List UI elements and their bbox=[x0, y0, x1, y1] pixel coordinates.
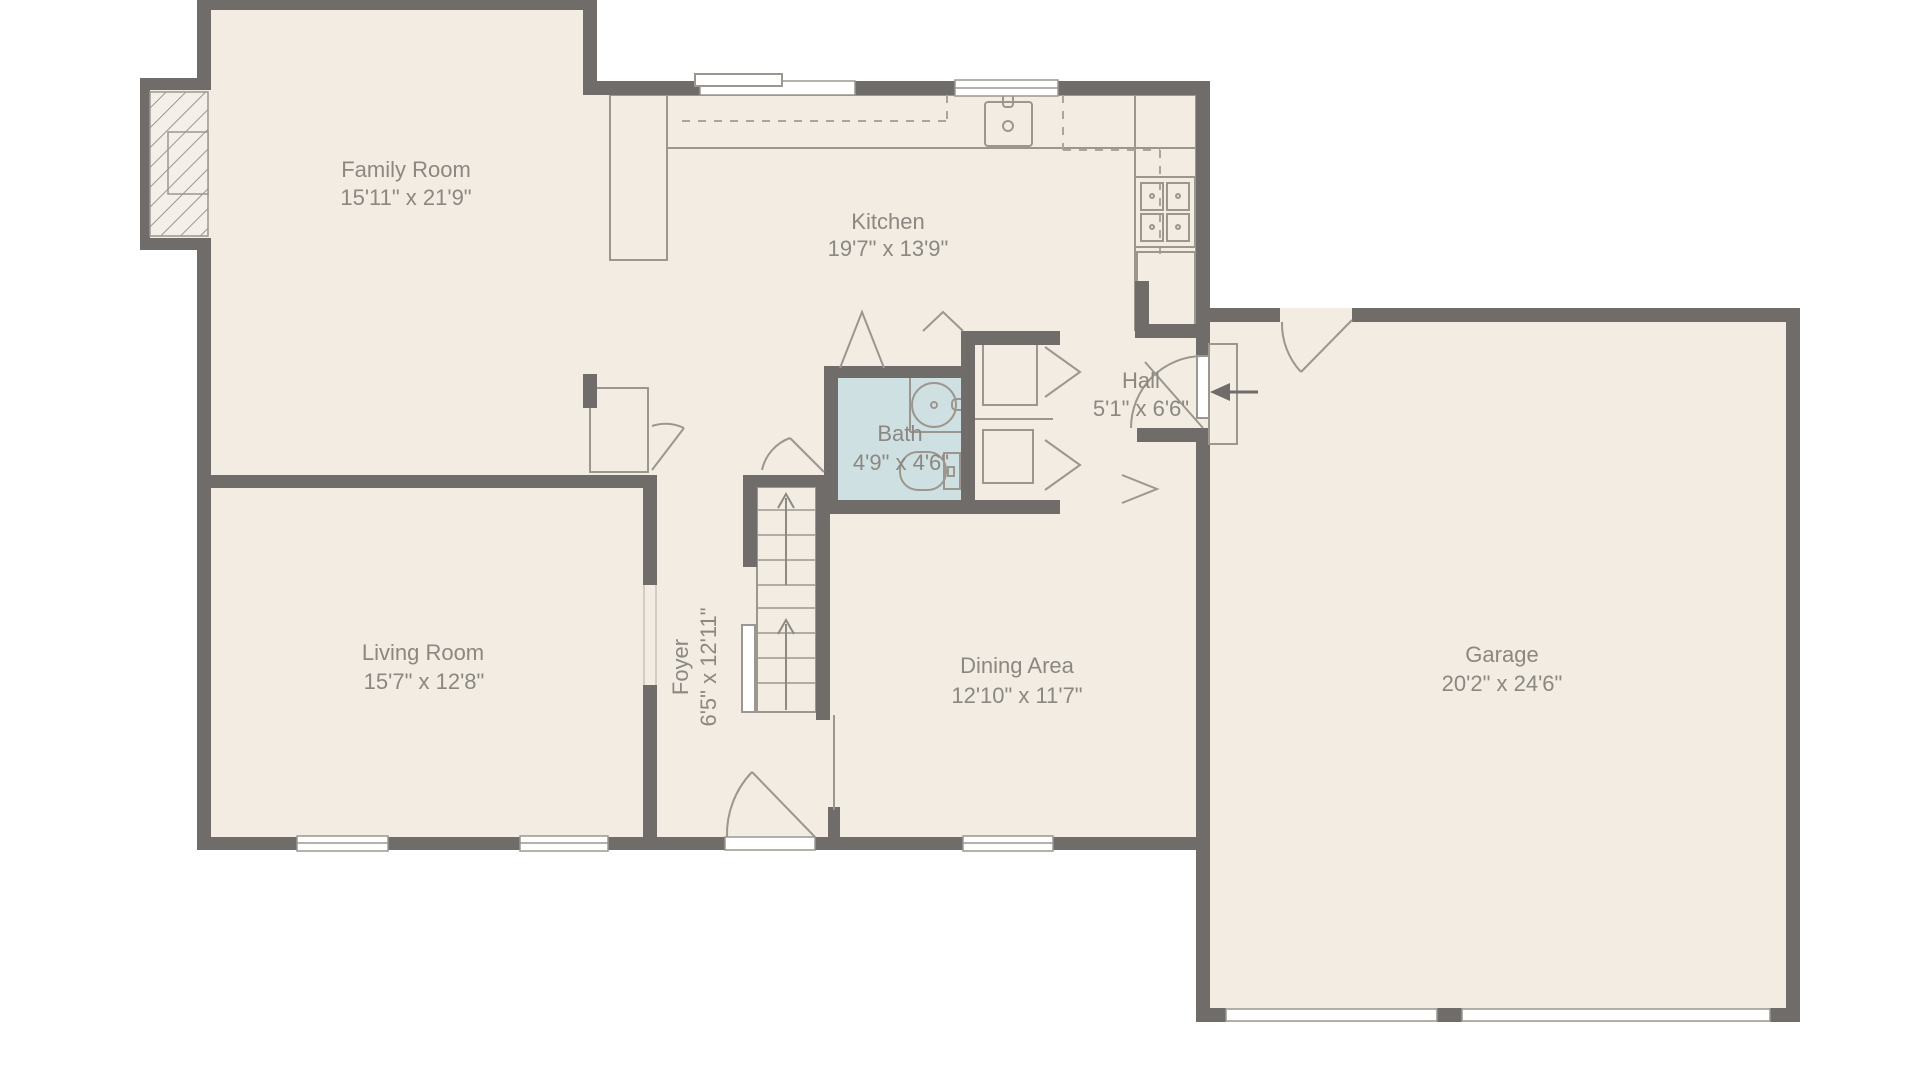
chimney-wall-left bbox=[140, 78, 150, 250]
bath-label: Bath bbox=[877, 421, 922, 446]
kitchen-label: Kitchen bbox=[851, 209, 924, 234]
wall-garage-top-1 bbox=[1210, 308, 1280, 322]
foyer-dims: 6'5" x 12'11" bbox=[696, 607, 721, 726]
firebox-hatch bbox=[168, 132, 208, 194]
wall-garage-bottom-left-corner bbox=[1196, 1008, 1226, 1022]
kitchen-dims: 19'7" x 13'9" bbox=[828, 236, 949, 261]
wall-garage-left-lower bbox=[1196, 428, 1210, 1022]
wall-stair-left bbox=[743, 477, 757, 567]
wall-garage-right bbox=[1786, 308, 1800, 1022]
wall-garage-bottom-post bbox=[1437, 1008, 1462, 1022]
garage-label: Garage bbox=[1465, 642, 1538, 667]
wall-top-family bbox=[197, 0, 595, 10]
wall-closet-top bbox=[961, 331, 1060, 345]
wall-left-lower bbox=[197, 248, 211, 850]
sliding-door bbox=[695, 74, 855, 95]
wall-foyer-left-lower bbox=[643, 685, 657, 837]
wall-family-right bbox=[583, 0, 597, 95]
living-room-label: Living Room bbox=[362, 640, 484, 665]
wall-kitchen-top-1 bbox=[583, 81, 700, 95]
dining-window bbox=[963, 836, 1053, 851]
wall-bath-right bbox=[961, 331, 975, 514]
wall-bath-left bbox=[824, 366, 838, 514]
family-room-dims: 15'11" x 21'9" bbox=[340, 185, 471, 210]
wall-garage-left-upper bbox=[1196, 308, 1210, 358]
floor-plan-drawing: Family Room 15'11" x 21'9" Kitchen 19'7"… bbox=[0, 0, 1920, 1080]
wall-left-upper bbox=[197, 0, 211, 80]
kitchen-window bbox=[955, 80, 1058, 96]
garage-door-2 bbox=[1462, 1009, 1770, 1021]
wall-kitchen-top-3 bbox=[1058, 81, 1210, 95]
hall-dims: 5'1" x 6'6" bbox=[1093, 396, 1189, 421]
living-window-2 bbox=[520, 836, 608, 851]
wall-hall-left-stub bbox=[1135, 281, 1149, 338]
living-room-dims: 15'7" x 12'8" bbox=[364, 669, 485, 694]
floor-plan-canvas: Family Room 15'11" x 21'9" Kitchen 19'7"… bbox=[0, 0, 1920, 1080]
family-room-label: Family Room bbox=[341, 157, 471, 182]
wall-kitchen-right bbox=[1196, 81, 1210, 338]
wall-living-top bbox=[197, 475, 657, 488]
living-window-1 bbox=[297, 836, 388, 851]
wall-closet-stub bbox=[583, 374, 597, 408]
wall-bath-top bbox=[824, 366, 975, 378]
wall-garage-top-2 bbox=[1352, 308, 1800, 322]
wall-garage-bottom-right-corner bbox=[1770, 1008, 1800, 1022]
wall-foyer-dining-stub bbox=[828, 807, 840, 837]
wall-foyer-left-upper bbox=[643, 475, 657, 585]
hall-label: Hall bbox=[1122, 368, 1160, 393]
bath-dims: 4'9" x 4'6" bbox=[853, 450, 949, 475]
foyer-label: Foyer bbox=[668, 639, 693, 695]
stair-closet-door bbox=[742, 625, 755, 712]
dining-area-dims: 12'10" x 11'7" bbox=[951, 683, 1082, 708]
wall-kitchen-top-2 bbox=[855, 81, 955, 95]
fireplace-chimney bbox=[140, 78, 211, 250]
dining-area-label: Dining Area bbox=[960, 653, 1075, 678]
wall-bath-bottom bbox=[824, 500, 1060, 514]
garage-door-1 bbox=[1226, 1009, 1437, 1021]
garage-dims: 20'2" x 24'6" bbox=[1442, 671, 1563, 696]
